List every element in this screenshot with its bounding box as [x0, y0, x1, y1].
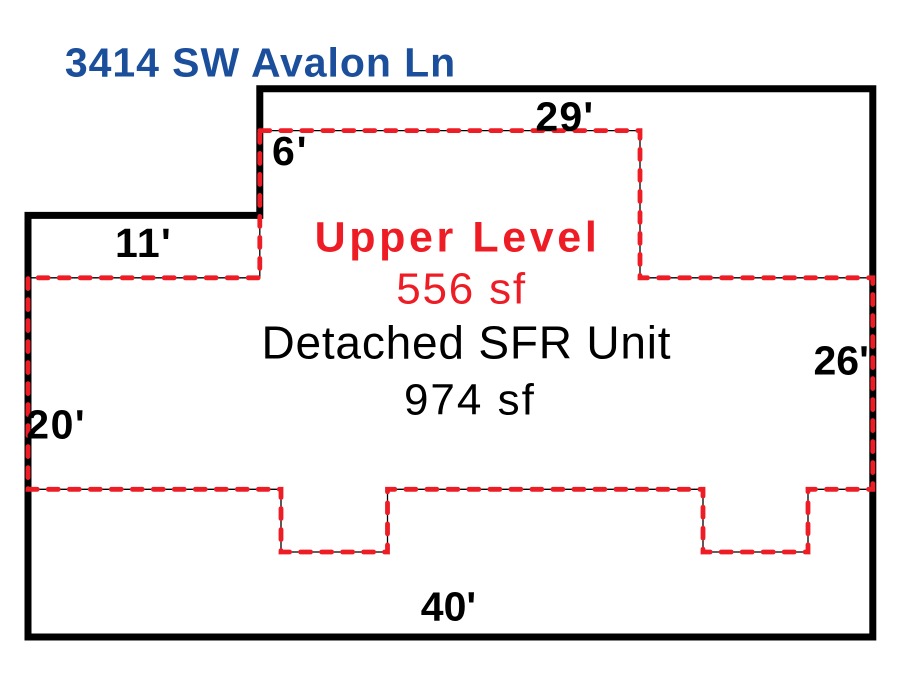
svg-text:40': 40' — [421, 584, 476, 630]
svg-text:Upper Level: Upper Level — [315, 213, 601, 261]
svg-text:20': 20' — [26, 402, 86, 448]
svg-text:Detached SFR Unit: Detached SFR Unit — [261, 317, 671, 369]
svg-text:26': 26' — [814, 337, 869, 383]
svg-text:11': 11' — [115, 220, 172, 266]
svg-text:29': 29' — [535, 93, 594, 139]
svg-text:3414 SW Avalon Ln: 3414 SW Avalon Ln — [65, 40, 456, 86]
svg-text:556 sf: 556 sf — [396, 265, 527, 314]
svg-text:6': 6' — [272, 128, 309, 174]
svg-text:974 sf: 974 sf — [404, 376, 536, 425]
